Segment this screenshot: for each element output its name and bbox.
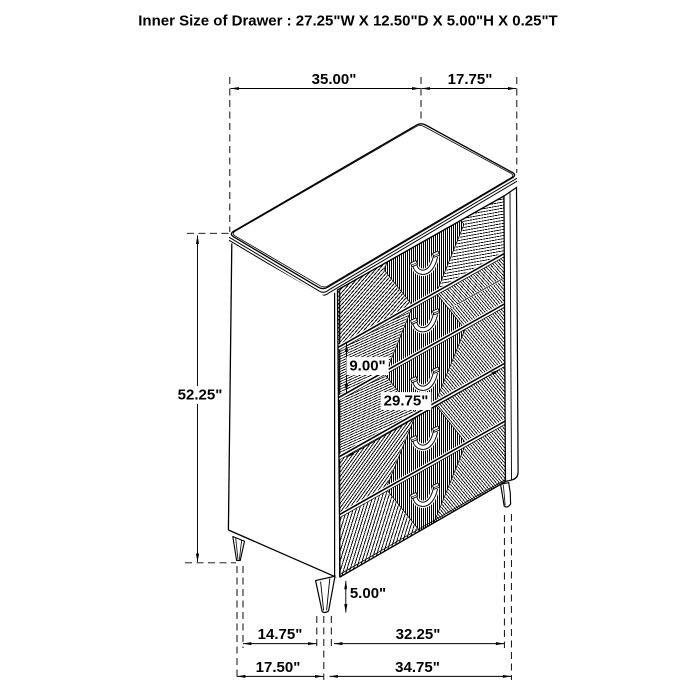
svg-text:17.75": 17.75" — [448, 71, 493, 88]
svg-text:Inner Size of Drawer : 27.25"W: Inner Size of Drawer : 27.25"W X 12.50"D… — [138, 13, 557, 30]
svg-text:34.75": 34.75" — [395, 659, 440, 676]
svg-text:32.25": 32.25" — [396, 626, 441, 643]
svg-text:35.00": 35.00" — [312, 71, 357, 88]
svg-text:17.50": 17.50" — [256, 659, 301, 676]
svg-text:29.75": 29.75" — [384, 393, 429, 410]
svg-text:9.00": 9.00" — [349, 358, 385, 375]
svg-text:52.25": 52.25" — [178, 387, 223, 404]
svg-text:5.00": 5.00" — [350, 585, 386, 602]
svg-text:14.75": 14.75" — [258, 626, 303, 643]
